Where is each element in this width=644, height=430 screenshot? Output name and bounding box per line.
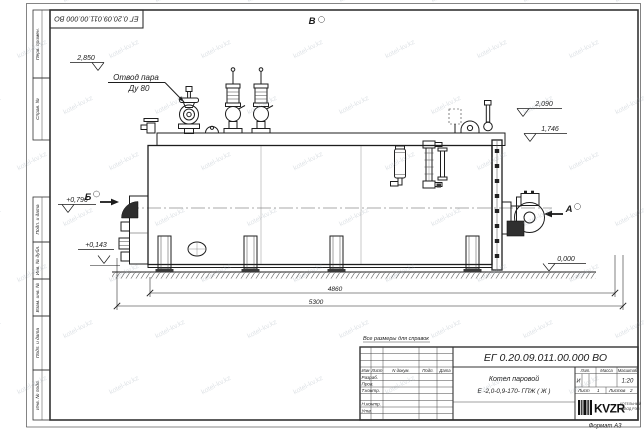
front-nozzle-1: [121, 222, 130, 231]
elevation-1746: 1,746: [541, 126, 559, 133]
margin-label-inv-podl: Инв. № подл.: [35, 380, 41, 410]
platform-right-fittings: [449, 101, 492, 134]
steam-note-line1: Отвод пара: [113, 73, 159, 82]
dim-4860: 4860: [328, 286, 343, 293]
burner-fan-unit: [502, 191, 545, 236]
logo-caption1: КОТЕЛЬНЫЙ: [620, 402, 642, 406]
col-list: Лист: [370, 368, 382, 373]
sheets-label: Листов: [608, 388, 626, 393]
top-stamp-doc-number: ЕГ 0.20.09.011.00.000 ВО: [54, 14, 139, 23]
annotations: Отвод пара Ду 80 В Б А 2,850 2,090 1,746…: [58, 16, 626, 310]
valve-flange: [179, 124, 200, 129]
drawing-sheet: Перв. примен. Справ. № Подп. и дата Инв.…: [0, 0, 644, 430]
col-izm: Изм: [362, 368, 370, 373]
col-data: Дата: [438, 368, 451, 373]
margin-label-sprav-no: Справ. №: [35, 98, 41, 120]
kvzr-logo: KVZR КОТЕЛЬНЫЙ ЗАВОД РЭП: [578, 400, 642, 416]
engineering-drawing: Перв. примен. Справ. № Подп. и дата Инв.…: [0, 0, 644, 430]
margin-label-podp-data-2: Подп. и дата: [35, 328, 41, 358]
col-ndoc: N докум.: [392, 368, 409, 373]
lifting-lug: [461, 121, 479, 133]
role-utv: Утв.: [362, 408, 372, 413]
product-title-line1: Котел паровой: [489, 375, 539, 383]
col-podp: Подп.: [422, 368, 433, 373]
view-label-top: В: [309, 16, 316, 27]
burner-door-arc: [122, 202, 139, 219]
elevation-0796: +0,796: [66, 197, 88, 204]
title-block: Все размеры для справок Изм Лист N докум…: [360, 336, 642, 430]
role-tkontr: Т.контр.: [362, 388, 381, 393]
sheets-value: 2: [629, 388, 633, 393]
view-label-right: А: [565, 204, 573, 215]
elevation-0143: +0,143: [85, 242, 107, 249]
front-plate: [119, 196, 148, 264]
margin-label-vzam-inv: Взам. инв. №: [35, 283, 41, 313]
drum-dome: [206, 126, 219, 133]
support-legs: [156, 236, 482, 272]
scale-value: 1:20: [622, 379, 634, 385]
role-prov: Пров.: [362, 382, 374, 387]
logo-caption2: ЗАВОД РЭП: [620, 407, 640, 411]
top-platform: [157, 133, 505, 146]
steam-note-line2: Ду 80: [128, 84, 150, 93]
steam-outlet-valve: [179, 87, 200, 134]
skid-rail: [148, 265, 492, 268]
role-razrab: Разраб.: [362, 375, 379, 380]
handle-loop: [484, 122, 493, 131]
format-note: Формат А3: [589, 424, 622, 430]
view-arrow-right: [544, 211, 552, 218]
sheet-value: 1: [597, 388, 600, 393]
hidden-flue-outline: [449, 109, 461, 124]
water-gauge-column: [423, 141, 447, 188]
burner-motor: [507, 221, 524, 236]
product-title-line2: Е -2,0-0,9-170- ГПЖ ( Ж ): [477, 388, 550, 395]
reference-note: Все размеры для справок: [363, 336, 429, 342]
front-nozzle-2: [119, 238, 130, 249]
role-nkontr: Н.контр.: [362, 402, 381, 407]
margin-label-inv-dubl: Инв. № дубл.: [35, 246, 41, 276]
sheet-label: Лист: [577, 388, 590, 393]
margin-label-perv-primen: Перв. примен.: [35, 28, 41, 60]
elevation-2090: 2,090: [534, 101, 553, 108]
mass-header: Масса: [600, 368, 613, 373]
safety-valve-2: [252, 68, 273, 133]
margin-label-podp-data-1: Подп. и дата: [35, 204, 41, 234]
scale-header: Масштаб: [618, 368, 638, 373]
elevation-0000: 0,000: [557, 256, 575, 263]
elevation-2850: 2,850: [76, 55, 95, 62]
front-nozzle-3: [121, 252, 130, 261]
doc-number: ЕГ 0.20.09.011.00.000 ВО: [484, 352, 607, 364]
water-gauge-1: [391, 146, 406, 186]
safety-valve-1: [224, 68, 245, 133]
manhole: [188, 242, 206, 256]
view-arrow-left: [111, 199, 119, 206]
dim-5300: 5300: [309, 299, 324, 306]
boiler-side-view: [112, 68, 596, 279]
drum-left-fitting: [141, 119, 158, 134]
lit-value: И: [577, 379, 581, 385]
lit-header: Лит.: [580, 368, 591, 373]
ground-hatch: [112, 272, 596, 279]
